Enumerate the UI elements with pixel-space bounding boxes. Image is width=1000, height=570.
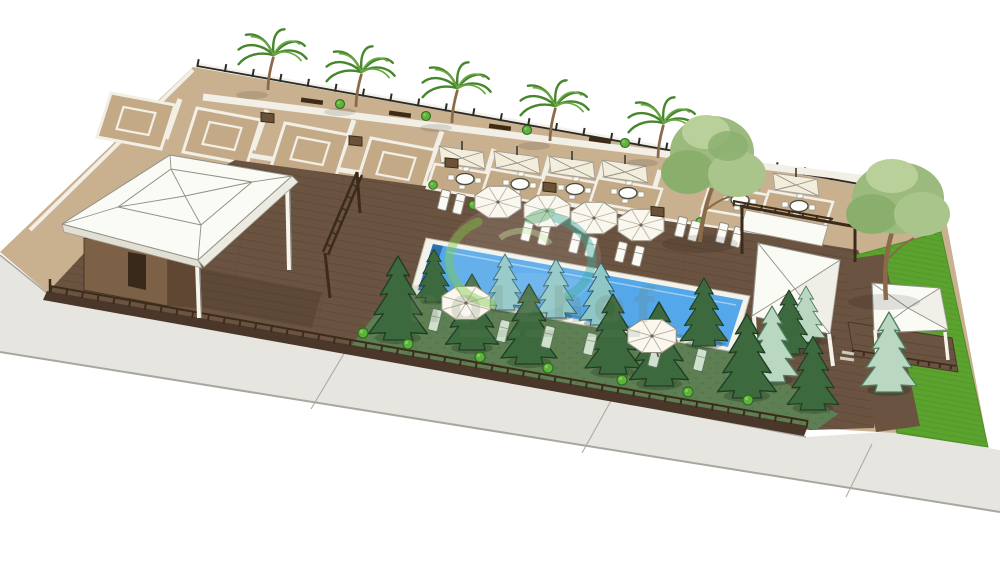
- shrub: [358, 328, 368, 338]
- pavilion-post: [287, 180, 289, 270]
- pavilion-door: [128, 252, 146, 290]
- shrub: [523, 126, 532, 135]
- ornamental-tile: [183, 108, 261, 164]
- rendering-canvas: holzhof: [0, 0, 1000, 570]
- shrub: [543, 363, 553, 373]
- ornamental-tile: [97, 93, 175, 149]
- shrub: [743, 395, 753, 405]
- watermark-text: holzhof: [407, 278, 663, 334]
- shrub: [429, 181, 438, 190]
- palm-planter: [445, 158, 458, 168]
- palm-planter: [349, 136, 362, 146]
- shrub: [621, 139, 630, 148]
- palm-planter: [261, 112, 274, 122]
- site-plan-rendering: holzhof: [0, 0, 1000, 570]
- watermark-tagline: [460, 330, 640, 337]
- shrub: [683, 387, 693, 397]
- palm-planter: [651, 206, 664, 216]
- shrub: [422, 112, 431, 121]
- shrub: [617, 375, 627, 385]
- shrub: [403, 339, 413, 349]
- palm-planter: [543, 182, 556, 192]
- shrub: [475, 352, 485, 362]
- shrub: [336, 100, 345, 109]
- pavilion-post: [197, 262, 199, 318]
